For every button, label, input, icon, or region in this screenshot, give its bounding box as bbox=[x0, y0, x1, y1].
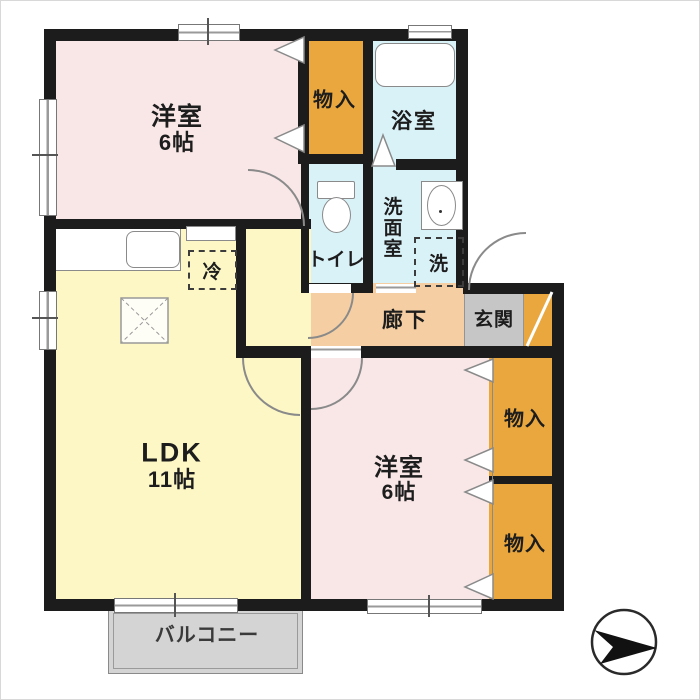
bedroom2-size: 6帖 bbox=[382, 476, 417, 506]
bath-label: 浴室 bbox=[391, 105, 437, 135]
balcony-label: バルコニー bbox=[155, 619, 260, 648]
storage-top-label: 物入 bbox=[313, 84, 357, 113]
closet-door-chevron bbox=[465, 359, 493, 382]
washroom-label: 洗面室 bbox=[378, 197, 405, 260]
ldk-size: 11帖 bbox=[148, 462, 196, 494]
bedroom1-size: 6帖 bbox=[159, 125, 195, 157]
closet-door-chevron bbox=[465, 574, 493, 599]
toilet-label: トイレ bbox=[307, 245, 364, 272]
storage-right-lower-label: 物入 bbox=[504, 528, 546, 557]
entrance-label: 玄関 bbox=[474, 305, 514, 332]
closet-door-chevron bbox=[275, 37, 304, 63]
closet-door-chevron bbox=[465, 480, 493, 504]
bath-door-triangle bbox=[372, 135, 395, 166]
entrance-step-diagonal bbox=[527, 292, 552, 346]
hallway-label: 廊下 bbox=[382, 304, 428, 334]
closet-door-chevron bbox=[275, 125, 304, 152]
storage-right-upper-label: 物入 bbox=[504, 403, 546, 432]
closet-door-chevron bbox=[465, 448, 493, 472]
floorplan: 冷 洗 洋室 6帖 物入 浴室 トイレ 洗面室 bbox=[0, 0, 700, 700]
